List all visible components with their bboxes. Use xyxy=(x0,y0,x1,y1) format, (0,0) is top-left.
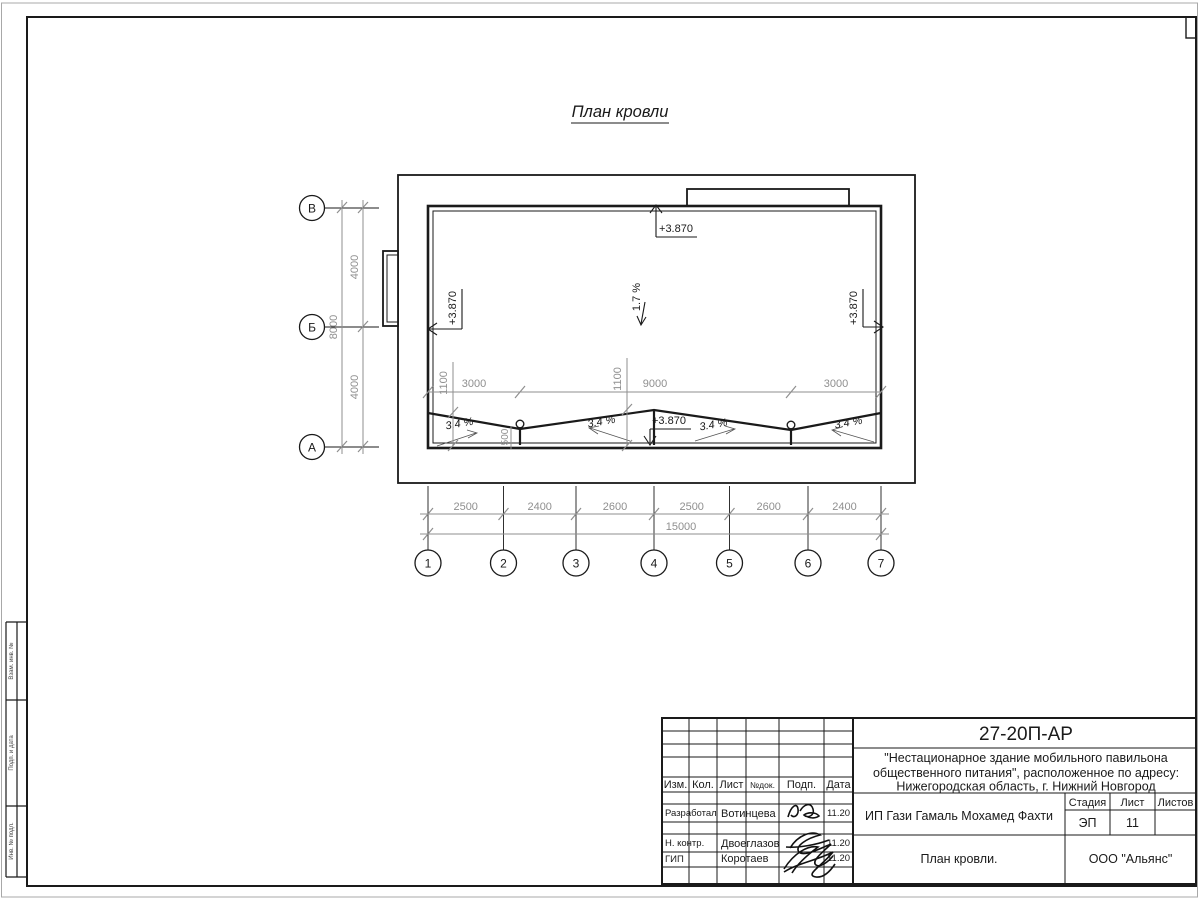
axis-number: 2 xyxy=(500,557,507,571)
tb-company: ООО "Альянс" xyxy=(1089,852,1173,866)
roof-edge-inner xyxy=(433,211,876,443)
elevation-mark-ridge: +3.870 xyxy=(644,415,691,445)
signature-votintseva xyxy=(788,805,819,818)
tb-name: Двоеглазов xyxy=(721,838,780,850)
elevation-value: +3.870 xyxy=(848,291,860,325)
elevation-value: +3.870 xyxy=(659,223,693,235)
drawing-sheet: Взам. инв. № Подп. и дата Инв. № подл. П… xyxy=(0,0,1200,900)
dim-value: 500 xyxy=(500,428,511,445)
tb-role: ГИП xyxy=(665,854,684,865)
tb-doc-number: 27-20П-АР xyxy=(979,724,1073,745)
roof-drain-icon xyxy=(516,420,524,428)
side-stamp-label: Взам. инв. № xyxy=(8,642,15,679)
dim-value: 2400 xyxy=(832,501,856,513)
building-outline xyxy=(383,175,915,483)
side-stamp-label: Подп. и дата xyxy=(9,735,15,771)
slope-value: 3.4 % xyxy=(445,416,475,433)
tb-sheet-label: Лист xyxy=(1121,797,1145,809)
slope-mark-roof: 3.4 % xyxy=(587,414,630,441)
elevation-value: +3.870 xyxy=(652,415,686,427)
axis-letter: В xyxy=(308,202,316,216)
dim-value: 1100 xyxy=(612,367,624,391)
tb-header-kol: Кол. xyxy=(692,779,714,791)
dim-value: 4000 xyxy=(349,255,361,279)
dim-value: 9000 xyxy=(643,378,667,390)
elevation-value: +3.870 xyxy=(447,291,459,325)
axis-letter: А xyxy=(308,441,316,455)
slope-value: 3.4 % xyxy=(834,415,864,432)
axis-bubbles-bottom: 1 2 3 4 5 6 7 xyxy=(415,550,894,576)
drawing-canvas: Взам. инв. № Подп. и дата Инв. № подл. П… xyxy=(0,0,1200,900)
tb-name: Вотинцева xyxy=(721,808,776,820)
dim-value: 8000 xyxy=(328,315,340,339)
dim-value: 4000 xyxy=(349,375,361,399)
side-stamp-label: Инв. № подл. xyxy=(8,822,15,860)
dim-value: 2500 xyxy=(453,501,477,513)
dim-value: 2500 xyxy=(679,501,703,513)
tb-project-line: Нижегородская область, г. Нижний Новгоро… xyxy=(896,780,1156,794)
roof-hatch-left xyxy=(383,251,398,326)
tb-sheet-title: План кровли. xyxy=(920,852,997,866)
dim-value: 3000 xyxy=(462,378,486,390)
roof-drain-icon xyxy=(787,421,795,429)
axis-number: 4 xyxy=(651,557,658,571)
tb-role: Н. контр. xyxy=(665,838,704,849)
tb-stage-label: Стадия xyxy=(1069,797,1107,809)
left-axes: В Б А 8000 4000 4000 xyxy=(300,196,380,460)
tb-stage-value: ЭП xyxy=(1079,816,1097,830)
tb-sheets-label: Листов xyxy=(1158,797,1194,809)
elevation-mark-top: +3.870 xyxy=(650,205,697,237)
tb-header-data: Дата xyxy=(826,779,851,791)
axis-number: 1 xyxy=(425,557,432,571)
corner-stamp-box xyxy=(1186,17,1196,38)
dim-value: 2600 xyxy=(603,501,627,513)
dim-value: 1100 xyxy=(438,371,450,395)
roof-hatch-top xyxy=(687,189,849,206)
axis-number: 3 xyxy=(573,557,580,571)
tb-header-ndok: №док. xyxy=(750,780,775,790)
page-title: План кровли xyxy=(572,103,669,121)
axis-letter: Б xyxy=(308,321,316,335)
tb-date: 11.20 xyxy=(827,808,850,819)
tb-client: ИП Гази Гамаль Мохамед Фахти xyxy=(865,809,1053,823)
dim-value: 2400 xyxy=(527,501,551,513)
dim-value: 15000 xyxy=(666,521,697,533)
tb-header-izm: Изм. xyxy=(664,779,688,791)
axis-number: 7 xyxy=(878,557,885,571)
axis-number: 6 xyxy=(805,557,812,571)
tb-header-list: Лист xyxy=(720,779,744,791)
elevation-mark-right: +3.870 xyxy=(848,289,883,333)
dim-value: 2600 xyxy=(756,501,780,513)
tb-project-line: "Нестационарное здание мобильного павиль… xyxy=(884,751,1167,765)
dim-value: 3000 xyxy=(824,378,848,390)
tb-sheet-number: 11 xyxy=(1126,816,1139,830)
slope-value: 1.7 % xyxy=(631,283,643,311)
tb-name: Коротаев xyxy=(721,853,769,865)
axis-number: 5 xyxy=(726,557,733,571)
slope-mark-main: 1.7 % xyxy=(631,283,646,325)
tb-project-line: общественного питания", расположенное по… xyxy=(873,766,1179,780)
bottom-axes: 2500 2400 2600 2500 2600 2400 15000 1 2 … xyxy=(415,486,894,576)
slope-value: 3.4 % xyxy=(699,417,729,434)
slope-mark-roof: 3.4 % xyxy=(832,415,874,442)
tb-header-podp: Подп. xyxy=(787,779,816,791)
tb-role: Разработал xyxy=(665,808,717,819)
